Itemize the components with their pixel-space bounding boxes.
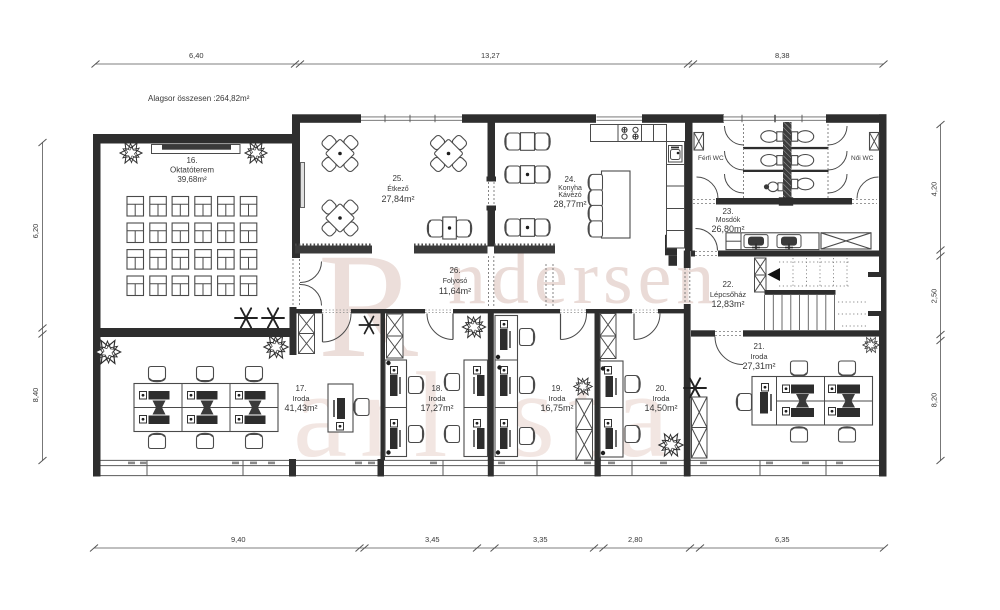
svg-text:22.: 22.: [722, 280, 733, 289]
svg-text:17.: 17.: [295, 384, 306, 393]
svg-text:Alagsor összesen :264,82m²: Alagsor összesen :264,82m²: [148, 94, 250, 103]
svg-text:18.: 18.: [431, 384, 442, 393]
svg-text:11,64m²: 11,64m²: [439, 286, 471, 296]
svg-text:8,20: 8,20: [930, 393, 939, 408]
svg-text:9,40: 9,40: [231, 535, 246, 544]
svg-text:23.: 23.: [722, 207, 733, 216]
svg-text:Iroda: Iroda: [652, 394, 670, 403]
svg-text:Női WC: Női WC: [851, 155, 874, 162]
svg-text:28,77m²: 28,77m²: [553, 199, 586, 209]
svg-text:19.: 19.: [551, 384, 562, 393]
svg-text:25.: 25.: [392, 174, 403, 183]
svg-text:Kávézó: Kávézó: [558, 192, 581, 199]
svg-text:3,45: 3,45: [425, 535, 440, 544]
svg-text:Iroda: Iroda: [750, 352, 768, 361]
svg-text:17,27m²: 17,27m²: [420, 403, 453, 413]
svg-text:Oktatóterem: Oktatóterem: [170, 166, 214, 175]
svg-text:26.: 26.: [449, 266, 460, 275]
svg-text:6,20: 6,20: [31, 224, 40, 239]
svg-text:16,75m²: 16,75m²: [540, 403, 573, 413]
svg-text:Iroda: Iroda: [548, 394, 566, 403]
svg-text:Lépcsőház: Lépcsőház: [710, 290, 747, 299]
svg-text:Mosdók: Mosdók: [716, 217, 741, 224]
svg-text:41,43m²: 41,43m²: [284, 403, 317, 413]
svg-text:14,50m²: 14,50m²: [644, 403, 677, 413]
svg-text:21.: 21.: [753, 342, 764, 351]
svg-text:2,50: 2,50: [930, 289, 939, 304]
svg-text:27,84m²: 27,84m²: [381, 194, 414, 204]
svg-text:Folyosó: Folyosó: [443, 278, 468, 285]
svg-text:6,40: 6,40: [189, 51, 204, 60]
svg-text:20.: 20.: [655, 384, 666, 393]
svg-text:12,83m²: 12,83m²: [711, 299, 744, 309]
svg-text:8,40: 8,40: [31, 388, 40, 403]
svg-text:8,38: 8,38: [775, 51, 790, 60]
svg-text:39,68m²: 39,68m²: [177, 175, 207, 184]
svg-text:Férfi WC: Férfi WC: [698, 155, 724, 162]
svg-text:4,20: 4,20: [930, 182, 939, 197]
svg-text:Iroda: Iroda: [428, 394, 446, 403]
svg-text:2,80: 2,80: [628, 535, 643, 544]
svg-text:27,31m²: 27,31m²: [742, 361, 775, 371]
svg-text:13,27: 13,27: [481, 51, 500, 60]
svg-text:3,35: 3,35: [533, 535, 548, 544]
svg-text:Konyha: Konyha: [558, 185, 582, 192]
svg-text:24.: 24.: [564, 175, 575, 184]
svg-text:Iroda: Iroda: [292, 394, 310, 403]
svg-text:16.: 16.: [186, 156, 197, 165]
svg-text:Étkező: Étkező: [387, 184, 409, 193]
svg-text:6,35: 6,35: [775, 535, 790, 544]
